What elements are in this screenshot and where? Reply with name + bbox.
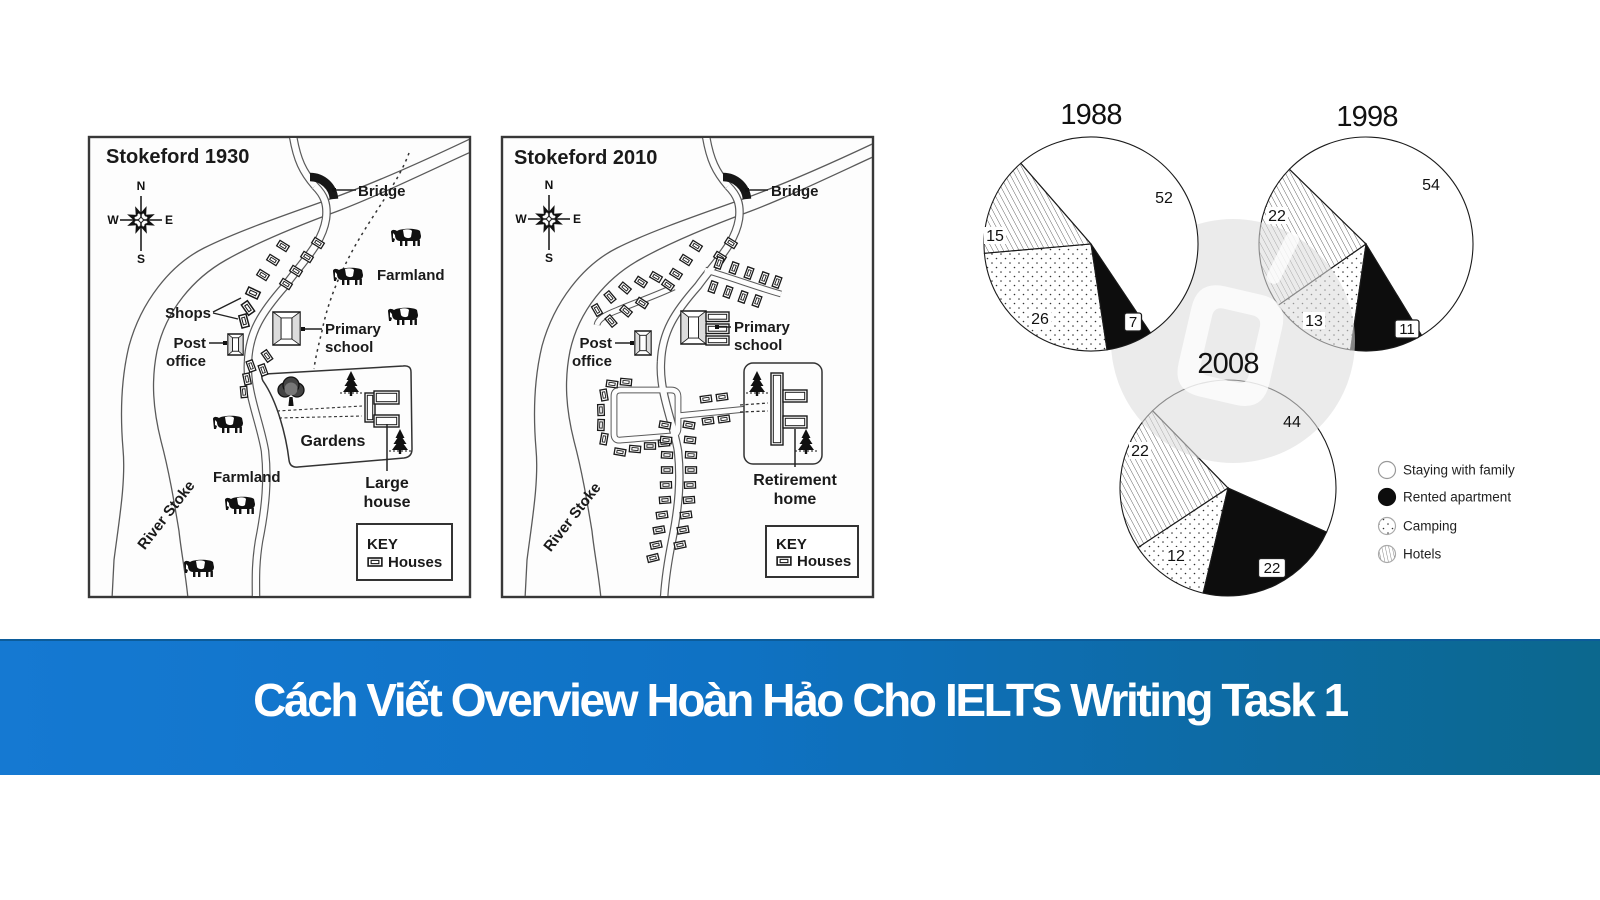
svg-text:22: 22 bbox=[1264, 560, 1281, 577]
svg-text:Large: Large bbox=[365, 475, 409, 492]
svg-text:Primary: Primary bbox=[734, 319, 791, 336]
svg-text:school: school bbox=[325, 339, 373, 356]
svg-text:Rented apartment: Rented apartment bbox=[1403, 490, 1511, 505]
svg-text:school: school bbox=[734, 337, 782, 354]
svg-text:E: E bbox=[165, 213, 173, 227]
svg-text:44: 44 bbox=[1283, 414, 1301, 431]
svg-text:1988: 1988 bbox=[1060, 99, 1121, 131]
svg-text:52: 52 bbox=[1155, 190, 1173, 207]
svg-text:15: 15 bbox=[986, 228, 1004, 245]
svg-text:Primary: Primary bbox=[325, 321, 382, 338]
svg-text:22: 22 bbox=[1268, 208, 1286, 225]
svg-text:S: S bbox=[137, 252, 145, 266]
svg-text:Post: Post bbox=[173, 335, 206, 352]
svg-text:Farmland: Farmland bbox=[213, 469, 281, 486]
svg-text:W: W bbox=[107, 213, 119, 227]
svg-text:7: 7 bbox=[1129, 314, 1137, 331]
svg-text:Post: Post bbox=[579, 335, 612, 352]
svg-text:12: 12 bbox=[1167, 548, 1185, 565]
svg-text:54: 54 bbox=[1422, 177, 1440, 194]
svg-text:26: 26 bbox=[1031, 311, 1049, 328]
svg-text:W: W bbox=[515, 212, 527, 226]
svg-text:Bridge: Bridge bbox=[771, 183, 819, 200]
svg-text:Staying with family: Staying with family bbox=[1403, 463, 1515, 478]
svg-text:13: 13 bbox=[1305, 313, 1323, 330]
svg-text:Stokeford 2010: Stokeford 2010 bbox=[514, 147, 657, 169]
svg-text:Retirement: Retirement bbox=[753, 472, 837, 489]
svg-text:Shops: Shops bbox=[165, 305, 211, 322]
svg-text:1998: 1998 bbox=[1336, 101, 1397, 133]
svg-text:house: house bbox=[363, 494, 410, 511]
svg-text:S: S bbox=[545, 251, 553, 265]
svg-text:Stokeford 1930: Stokeford 1930 bbox=[106, 146, 249, 168]
svg-text:N: N bbox=[545, 178, 554, 192]
svg-text:Bridge: Bridge bbox=[358, 183, 406, 200]
svg-text:office: office bbox=[572, 353, 612, 370]
svg-text:office: office bbox=[166, 353, 206, 370]
svg-text:Farmland: Farmland bbox=[377, 267, 445, 284]
svg-text:2008: 2008 bbox=[1197, 348, 1258, 380]
svg-text:Gardens: Gardens bbox=[301, 433, 366, 450]
svg-text:22: 22 bbox=[1131, 443, 1149, 460]
svg-text:KEY: KEY bbox=[776, 536, 807, 553]
svg-text:11: 11 bbox=[1399, 321, 1415, 338]
svg-text:Hotels: Hotels bbox=[1403, 547, 1442, 562]
svg-text:Houses: Houses bbox=[797, 553, 851, 570]
svg-text:Houses: Houses bbox=[388, 554, 442, 571]
svg-text:KEY: KEY bbox=[367, 536, 398, 553]
svg-text:N: N bbox=[137, 179, 146, 193]
svg-text:Camping: Camping bbox=[1403, 519, 1457, 534]
svg-text:home: home bbox=[774, 491, 817, 508]
svg-text:E: E bbox=[573, 212, 581, 226]
